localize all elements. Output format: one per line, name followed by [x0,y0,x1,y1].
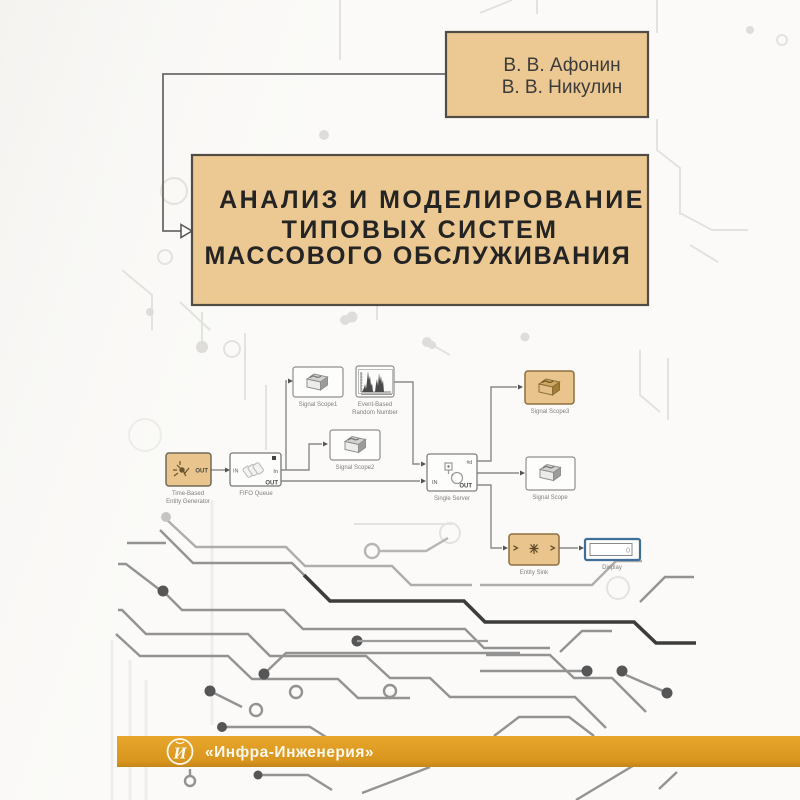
svg-text:0: 0 [626,548,630,555]
svg-text:OUT: OUT [195,469,208,475]
svg-text:В. В. Никулин: В. В. Никулин [502,77,623,98]
svg-text:IN: IN [432,480,438,486]
svg-text:Display: Display [602,565,622,571]
svg-text:#d: #d [466,460,472,466]
svg-text:FIFO Queue: FIFO Queue [239,491,273,497]
svg-text:Signal Scope1: Signal Scope1 [299,402,338,408]
svg-text:OUT: OUT [459,484,472,490]
svg-text:«Инфра-Инженерия»: «Инфра-Инженерия» [205,744,374,761]
svg-text:IN: IN [233,469,239,475]
svg-text:Signal Scope: Signal Scope [532,495,568,501]
svg-text:Signal Scope2: Signal Scope2 [336,465,375,471]
svg-text:Entity Sink: Entity Sink [520,570,549,576]
svg-text:Random Number: Random Number [352,410,398,416]
svg-text:OUT: OUT [265,481,278,487]
svg-text:Event-Based: Event-Based [358,402,392,408]
svg-text:Single Server: Single Server [434,496,470,502]
svg-text:ТИПОВЫХ СИСТЕМ: ТИПОВЫХ СИСТЕМ [282,216,559,244]
svg-text:И: И [172,744,187,763]
svg-text:Entity Generator: Entity Generator [166,499,210,505]
svg-text:In: In [273,469,278,475]
svg-text:МАССОВОГО ОБСЛУЖИВАНИЯ: МАССОВОГО ОБСЛУЖИВАНИЯ [205,242,632,270]
svg-text:Signal Scope3: Signal Scope3 [531,409,570,415]
svg-text:АНАЛИЗ И МОДЕЛИРОВАНИЕ: АНАЛИЗ И МОДЕЛИРОВАНИЕ [219,186,645,214]
svg-text:Time-Based: Time-Based [172,491,204,497]
svg-text:В. В. Афонин: В. В. Афонин [503,55,620,76]
